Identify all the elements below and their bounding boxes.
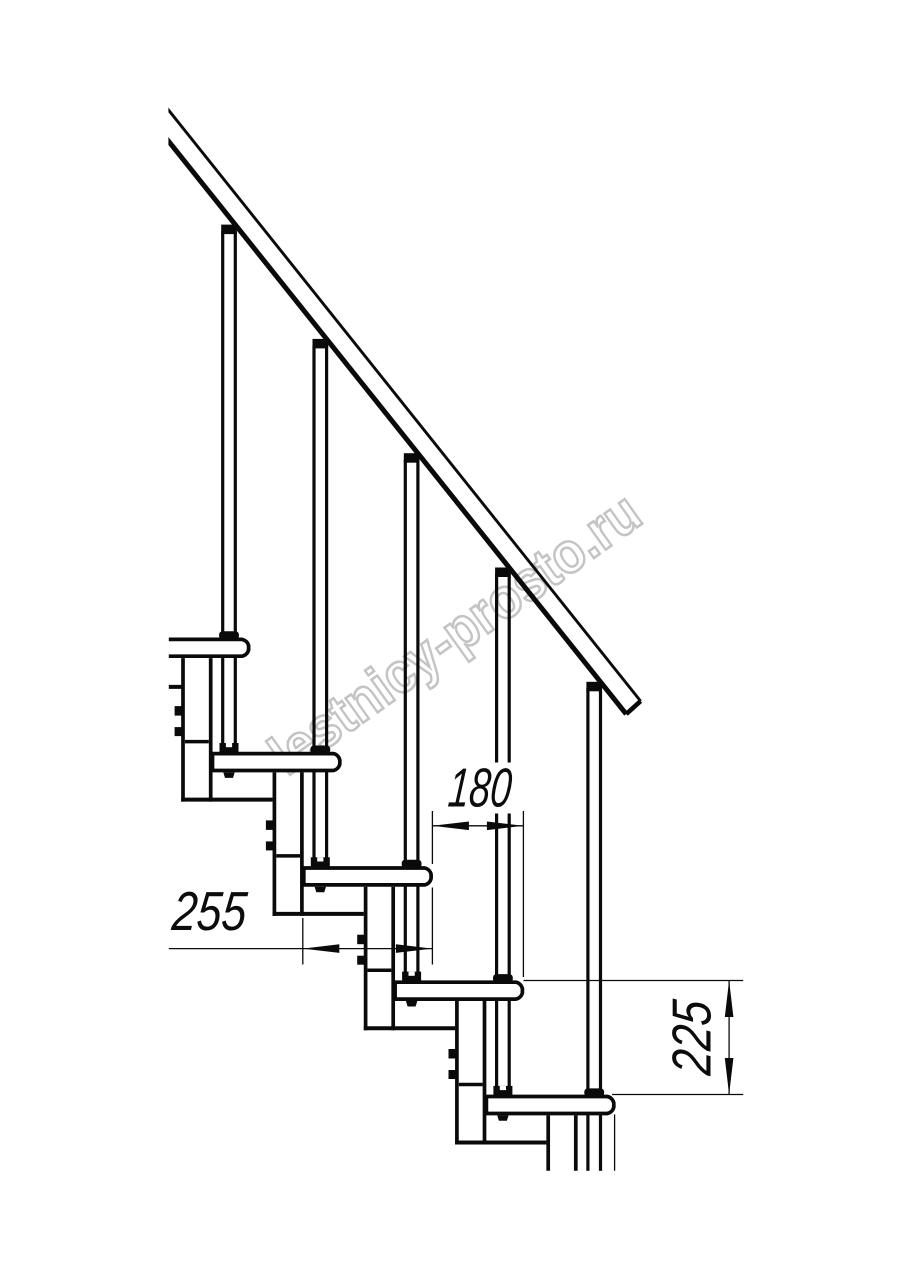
svg-text:225: 225: [661, 997, 723, 1078]
svg-text:255: 255: [169, 880, 250, 942]
svg-text:180: 180: [446, 757, 515, 819]
